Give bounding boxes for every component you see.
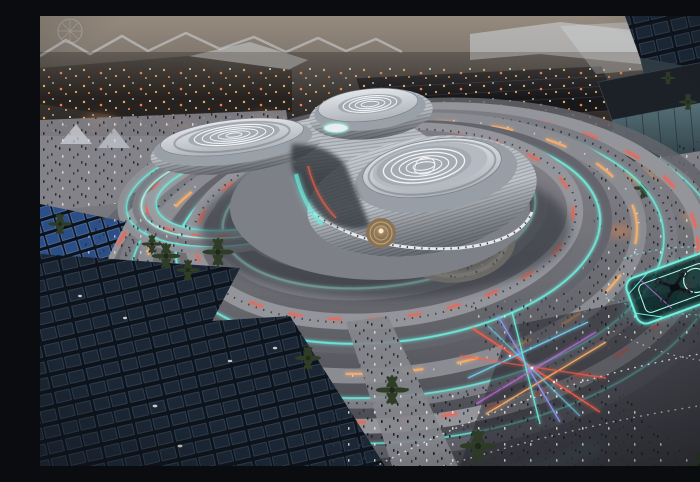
scene-canvas [40,16,700,466]
expo-pavilion-rendering: Aerial dusk rendering of a futuristic th… [40,16,700,466]
vignette [40,16,700,466]
